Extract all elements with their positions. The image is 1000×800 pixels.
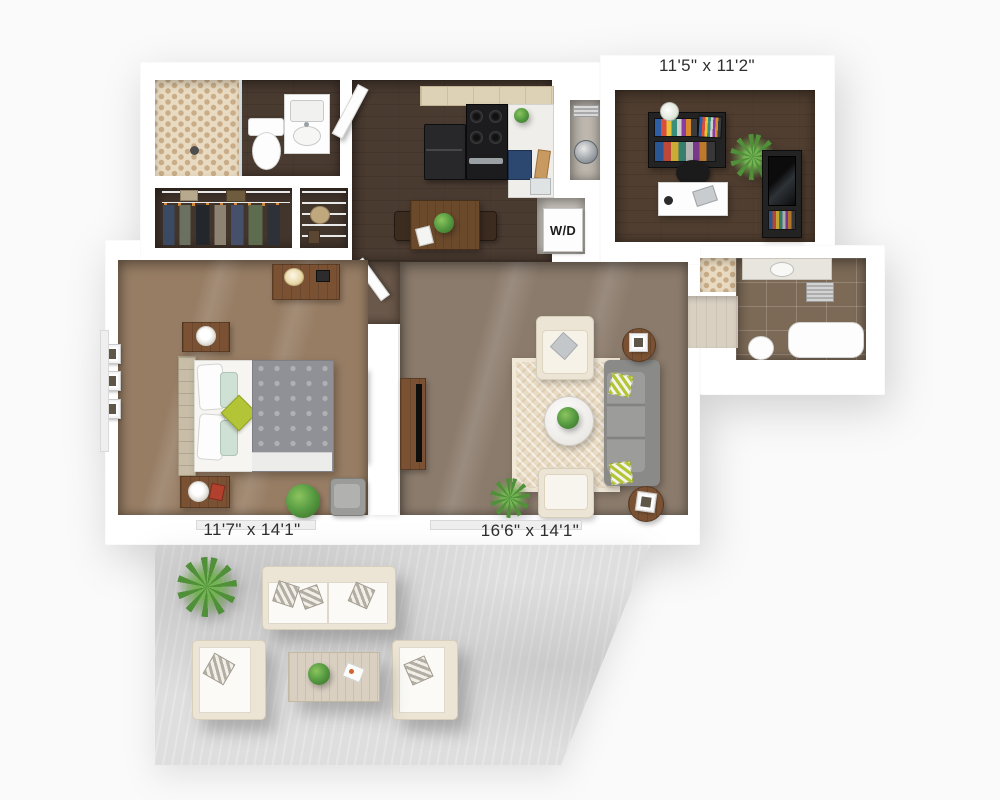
closet-hanging-clothes	[163, 205, 289, 245]
bathroom-2-hex-accent	[700, 258, 736, 292]
patio	[155, 545, 650, 765]
media-shelf-books	[768, 210, 796, 230]
bookshelf-flower-pot	[660, 102, 679, 121]
shower-drain	[190, 146, 199, 155]
kitchen-upper-cabinets	[420, 86, 554, 106]
bookshelf-books-top	[654, 118, 698, 137]
sofa-pillow-top	[608, 372, 633, 397]
living-tv-console	[400, 378, 426, 470]
nightstand-lamp-bottom	[188, 481, 209, 502]
closet-hat-box	[310, 206, 330, 224]
bedroom-chair-cushion	[334, 484, 360, 508]
living-tv	[416, 384, 422, 462]
bedroom-dimension-label: 11'7" x 14'1"	[203, 520, 300, 540]
washer-dryer-label: W/D	[550, 223, 576, 238]
refrigerator	[424, 124, 466, 180]
utility-vent	[573, 105, 599, 117]
office-tv	[768, 156, 796, 206]
nightstand-lamp-top	[196, 326, 216, 346]
bathroom-2-toilet	[748, 336, 774, 360]
dresser-flowers	[284, 268, 304, 286]
bookshelf-books-bottom	[654, 141, 716, 162]
dining-chair-right	[477, 211, 497, 241]
bathroom-2-vent	[806, 282, 834, 302]
vanity-mirror	[290, 100, 324, 122]
bathroom-2-sink	[770, 262, 794, 277]
kitchen-sink	[530, 178, 551, 195]
coffee-table-plant	[557, 407, 579, 429]
closet-duffel-bag	[226, 190, 246, 202]
water-heater	[574, 140, 598, 164]
stove-burner	[489, 131, 502, 144]
tv-partition-wall	[368, 324, 398, 515]
patio-coffee-table	[288, 652, 380, 702]
washer-dryer: W/D	[543, 208, 583, 252]
patio-table-plant	[308, 663, 330, 685]
side-table-picture-frame-2	[636, 492, 656, 512]
refrigerator-door-split	[426, 149, 462, 151]
side-table-picture-frame	[630, 334, 647, 351]
dresser-picture-frame	[316, 270, 330, 282]
bed-blanket-fold	[252, 452, 332, 471]
bathroom-2-vestibule	[686, 296, 738, 348]
vanity-sink	[293, 126, 321, 146]
shower-hex-tile	[155, 80, 241, 176]
sofa-pillow-bottom	[609, 461, 634, 486]
blue-cabinet	[508, 150, 532, 180]
toilet-bowl	[252, 132, 281, 170]
closet-divider-wall	[292, 188, 300, 248]
desk-lamp	[664, 196, 673, 205]
office-dimension-label: 11'5" x 11'2"	[659, 56, 755, 76]
shower-glass-panel	[239, 80, 242, 176]
vanity-faucet	[304, 122, 309, 127]
counter-plant	[514, 108, 529, 123]
accent-chair-cushion	[544, 474, 588, 510]
closet-shoes	[308, 230, 320, 244]
floorplan-image: W/D	[0, 0, 1000, 800]
stove-burner	[489, 110, 502, 123]
stove-burner	[470, 110, 483, 123]
dining-table-plant	[434, 213, 454, 233]
bedroom-plant	[286, 484, 320, 518]
living-room-plant	[490, 478, 530, 518]
stove-burner	[470, 131, 483, 144]
closet-storage-box	[180, 190, 198, 201]
bookshelf-binders	[697, 115, 722, 138]
bedroom-side-window-sill	[100, 330, 109, 452]
magazine-detail	[349, 669, 354, 674]
bathtub	[788, 322, 864, 358]
living-dimension-label: 16'6" x 14'1"	[481, 521, 579, 541]
oven-handle	[469, 158, 503, 164]
patio-palm-plant	[177, 557, 237, 617]
